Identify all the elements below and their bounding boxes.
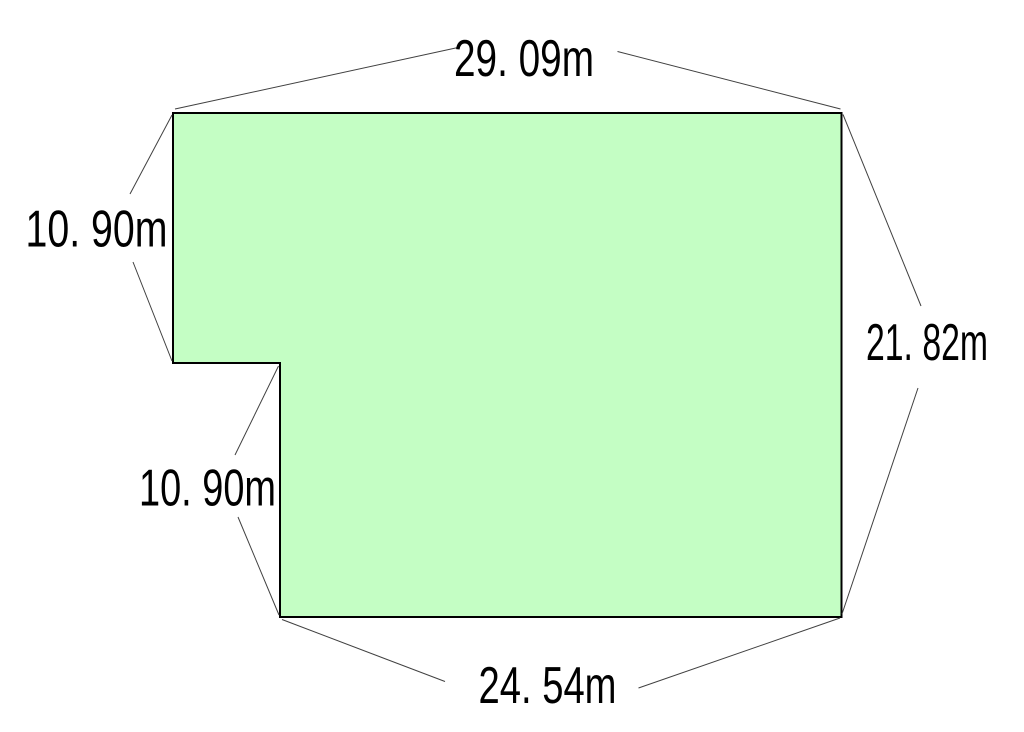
svg-text:10. 90m: 10. 90m (139, 459, 276, 517)
svg-text:10. 90m: 10. 90m (26, 200, 168, 258)
svg-text:21. 82m: 21. 82m (866, 314, 988, 372)
svg-text:24. 54m: 24. 54m (479, 657, 617, 715)
svg-text:29. 09m: 29. 09m (454, 30, 594, 88)
